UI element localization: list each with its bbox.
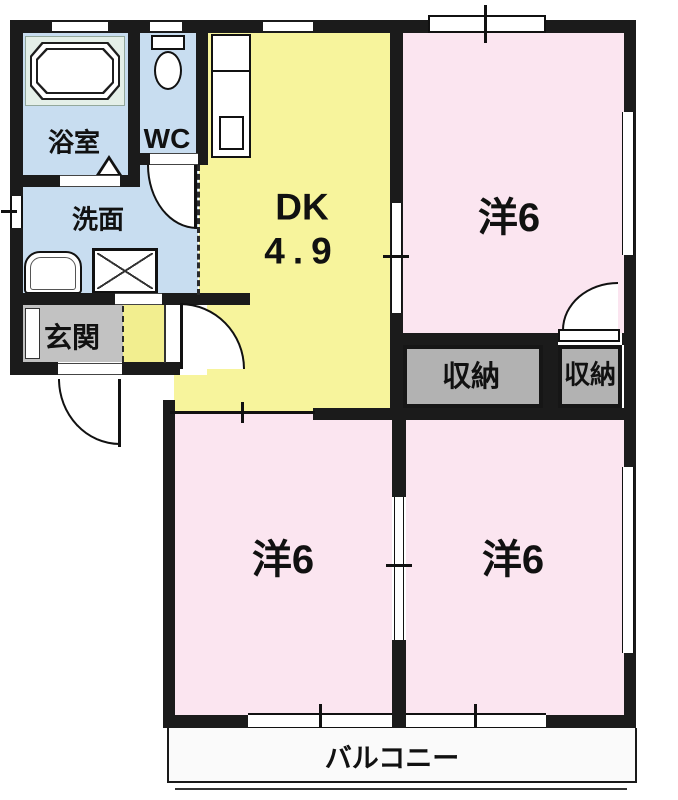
bedroom-br-side-window [622,467,634,653]
wall-closet-top-west [390,333,558,345]
hall-strip [123,305,165,362]
entrance-door-leaf [118,379,121,447]
dk-label-size: 4.9 [264,230,339,274]
floor-plan: 浴室 WC 洗面 玄関 DK 4.9 洋6 収納 収納 洋6 洋6 バルコニー [0,0,678,800]
sliding-door-dk-tick [383,255,409,258]
sliding-door-dk-bedroom [391,203,402,313]
wall-bath-wc [128,20,140,187]
wall-bath-bottom-east [120,175,140,187]
wall-entrance-bottom-west [10,362,58,375]
room-dk-west-strip [199,165,207,295]
wall-entrance-bottom-east [122,362,180,375]
washbasin-inner-line [30,257,76,290]
kitchen-stove [219,116,244,150]
dk-window [263,22,313,31]
bath-label: 浴室 [48,123,100,160]
dk-label-name: DK [264,186,339,230]
wall-closet-bottom [313,408,636,420]
hall-dk-line [164,305,166,363]
washer-pan-cross [97,253,153,289]
wall-south [163,715,636,728]
bedroom-tr-window [428,15,546,33]
dk-washroom-dashed-line [197,165,200,295]
closet-right-label: 収納 [564,355,616,392]
wall-dk-west [196,20,208,165]
dk-label: DK 4.9 [264,186,339,275]
bedroom-tr-door-leaf [558,329,620,342]
bedroom-bl-label: 洋6 [252,527,314,585]
wc-label: WC [144,123,191,155]
entrance-shoe-cabinet [25,308,40,359]
washroom-side-window-tick [1,210,17,213]
sliding-door-bedrooms-tick [386,564,412,567]
wall-bedrooms-divider-top [392,420,406,497]
bedroom-tr-side-window [622,112,634,255]
entrance-step-dashed-line [122,306,124,362]
washroom-label: 洗面 [72,200,124,237]
wc-window [150,22,182,31]
sliding-door-bedrooms [394,497,404,640]
toilet-tank [151,35,185,50]
wall-washroom-south-west [10,293,115,305]
dk-bedroom-bl-tick [241,402,244,423]
balcony-label: バルコニー [325,737,459,776]
balcony-outer-line [175,788,627,790]
bedroom-tr-window-tick [484,5,487,43]
toilet-bowl [154,51,182,90]
closet-left-label: 収納 [442,353,500,395]
bedroom-br-label: 洋6 [482,527,544,585]
wall-closet-left [390,345,403,408]
entrance-label: 玄関 [44,316,100,356]
bath-window [52,22,108,31]
bath-door-opening [60,175,120,187]
wall-bedroom-bl-left [163,400,175,728]
closet-divider-wall [543,345,558,408]
washroom-door-opening [115,293,162,305]
wall-bath-bottom-west [10,175,60,187]
entrance-door-opening [58,363,122,375]
kitchen-counter-divider [211,70,251,72]
room-dk-south-strip [174,375,207,413]
bedroom-tr-label: 洋6 [478,185,540,243]
wall-washroom-south-east [162,293,250,305]
entrance-door-arc [58,379,120,445]
bathtub-inner-white [38,50,112,92]
